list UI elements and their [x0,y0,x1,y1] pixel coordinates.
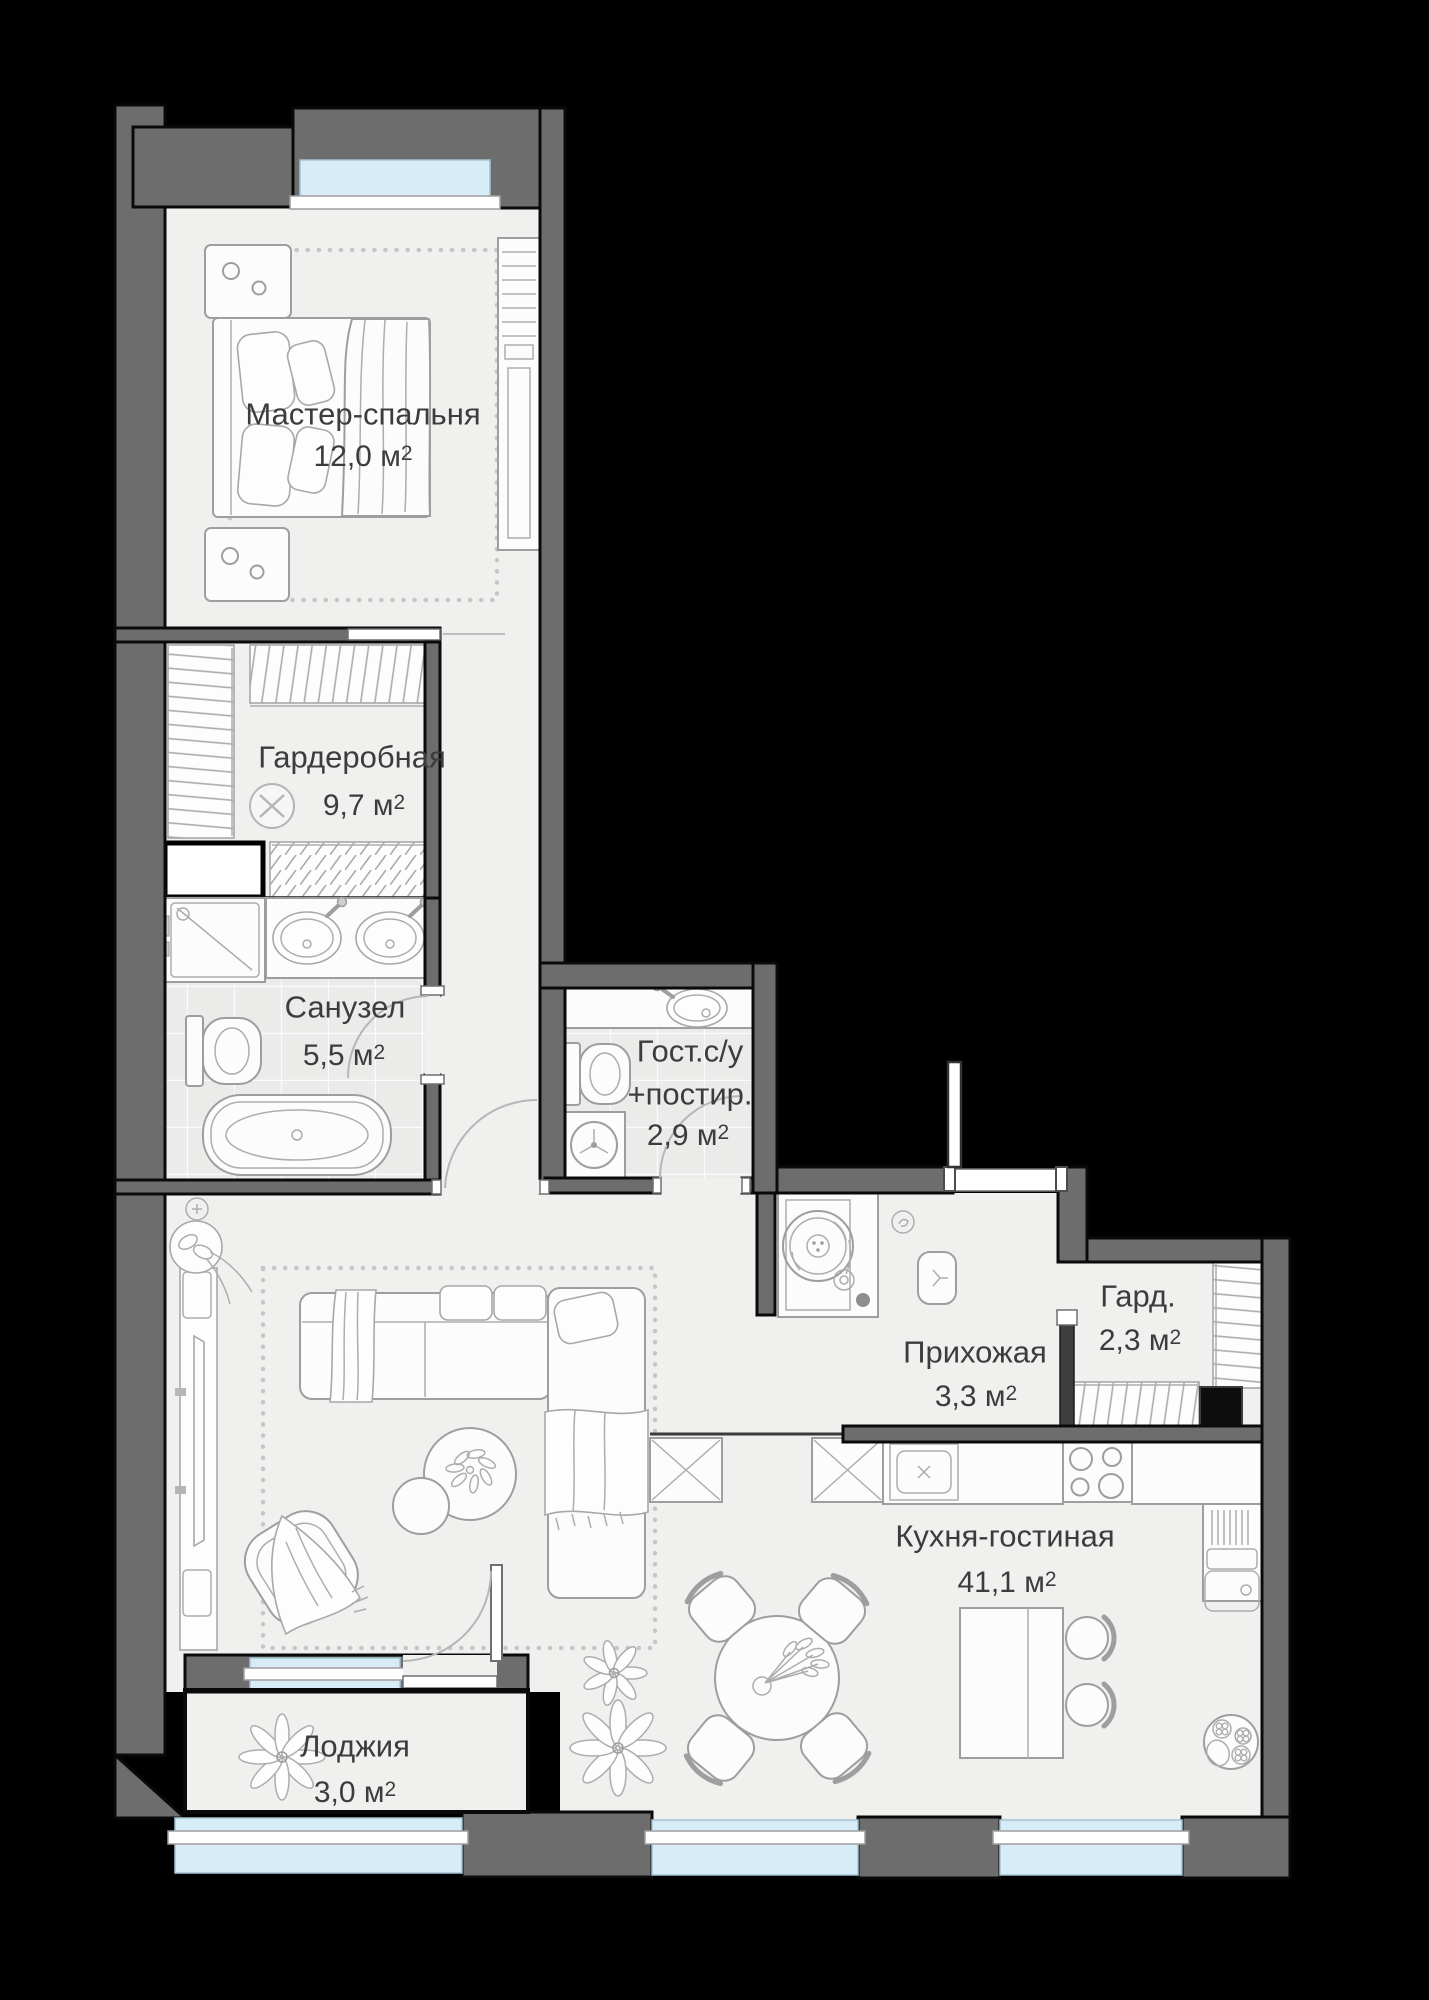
record-player-console [778,1193,878,1317]
floor-plan-drawing [0,0,1429,2000]
wall-left [115,105,165,1755]
chaise [545,1288,648,1598]
coffee-table-small [393,1478,449,1534]
bedroom-wardrobe-unit [498,238,540,550]
wall-bottom-pier2 [858,1817,1000,1878]
room-area-wardrobe: 9,7 м2 [323,788,405,824]
toilet [186,1016,261,1086]
room-area-loggia: 3,0 м2 [314,1775,396,1811]
nightstand-top [205,245,291,318]
room-area-bathroom: 5,5 м2 [303,1038,385,1074]
clothes-rack-bottom [270,842,430,905]
wall-closet-top [1087,1238,1290,1262]
room-area-master-bedroom: 12,0 м2 [313,439,412,475]
nightstand-bottom [205,528,289,601]
room-area-kitchen-living: 41,1 м2 [957,1565,1056,1601]
kitchen-island [960,1608,1063,1758]
wall-right [1262,1238,1290,1878]
floor-plan: Мастер-спальня 12,0 м2 Гардеробная 9,7 м… [0,0,1429,2000]
pillow [237,423,296,507]
guest-toilet [565,1043,630,1105]
room-label-hallway: Прихожая [903,1333,1047,1370]
wall-left-chamfer [115,1755,185,1818]
wall-bath-bottom [115,1180,440,1194]
wall-stub-hall [757,1193,775,1315]
chaise-blanket [545,1410,648,1515]
loggia-window [175,1818,462,1873]
double-washbasin [266,898,430,979]
window-bottom-1 [652,1820,858,1875]
room-label-bathroom: Санузел [285,988,406,1025]
wall-hall-closet [1060,1325,1074,1427]
shower [160,898,265,982]
back-cushion [494,1286,546,1320]
wall-bath-corridor-b [425,1075,440,1180]
room-area-hallway: 3,3 м2 [935,1379,1017,1415]
clothes-rack-left [168,645,234,838]
ventilation-shaft [165,843,263,897]
room-label-wardrobe: Гардеробная [258,738,446,775]
bedroom-window [300,160,490,200]
dish-rack [1212,1510,1248,1545]
closet-rack-bottom [1073,1382,1199,1427]
wall-kitchen-back [843,1426,1262,1442]
balcony-door-leaf [491,1565,502,1661]
shaft-closet [1200,1387,1242,1427]
room-area-guest-wc: 2,9 м2 [647,1118,729,1154]
bedroom-window-sill [290,196,500,209]
wall-bottom-pier3 [1182,1817,1290,1878]
entrance-door-leaf [948,1062,961,1167]
tv-console [175,1268,217,1650]
sliding-door-bedroom [348,629,440,640]
sofa-blanket [330,1290,376,1402]
window-bottom-2 [1000,1820,1182,1875]
bathtub [203,1095,391,1175]
sofa [300,1286,551,1402]
room-label-closet: Гард. [1100,1277,1176,1314]
wall-column-right [540,108,565,1193]
wall-guestwc-bottom-a [545,1178,660,1193]
tv [194,1336,204,1546]
closet-rack-right [1213,1262,1262,1388]
plant-kitchen-corner [1203,1715,1258,1769]
room-area-closet: 2,3 м2 [1099,1323,1181,1359]
wall-top-left [133,127,298,207]
room-label-loggia: Лоджия [300,1727,410,1764]
clothes-rack-top [250,645,432,706]
room-label-guest-wc-2: +постир. [628,1075,753,1112]
room-label-kitchen-living: Кухня-гостиная [895,1517,1114,1554]
wall-bottom-pier1 [462,1812,652,1877]
room-label-guest-wc: Гост.с/у [637,1032,743,1069]
wall-guestwc-right [753,963,777,1193]
bar-stool [1066,1684,1114,1726]
room-label-master-bedroom: Мастер-спальня [245,395,480,432]
bar-stool [1066,1617,1114,1659]
wall-entry [777,1167,953,1193]
entrance-threshold [953,1169,1058,1191]
wall-guestwc-top [540,963,777,988]
bench [918,1252,956,1304]
extractor-fan-icon [250,784,294,828]
washing-machine [565,1112,625,1178]
wall-bath-corridor-a [425,898,440,995]
back-cushion [440,1286,492,1320]
